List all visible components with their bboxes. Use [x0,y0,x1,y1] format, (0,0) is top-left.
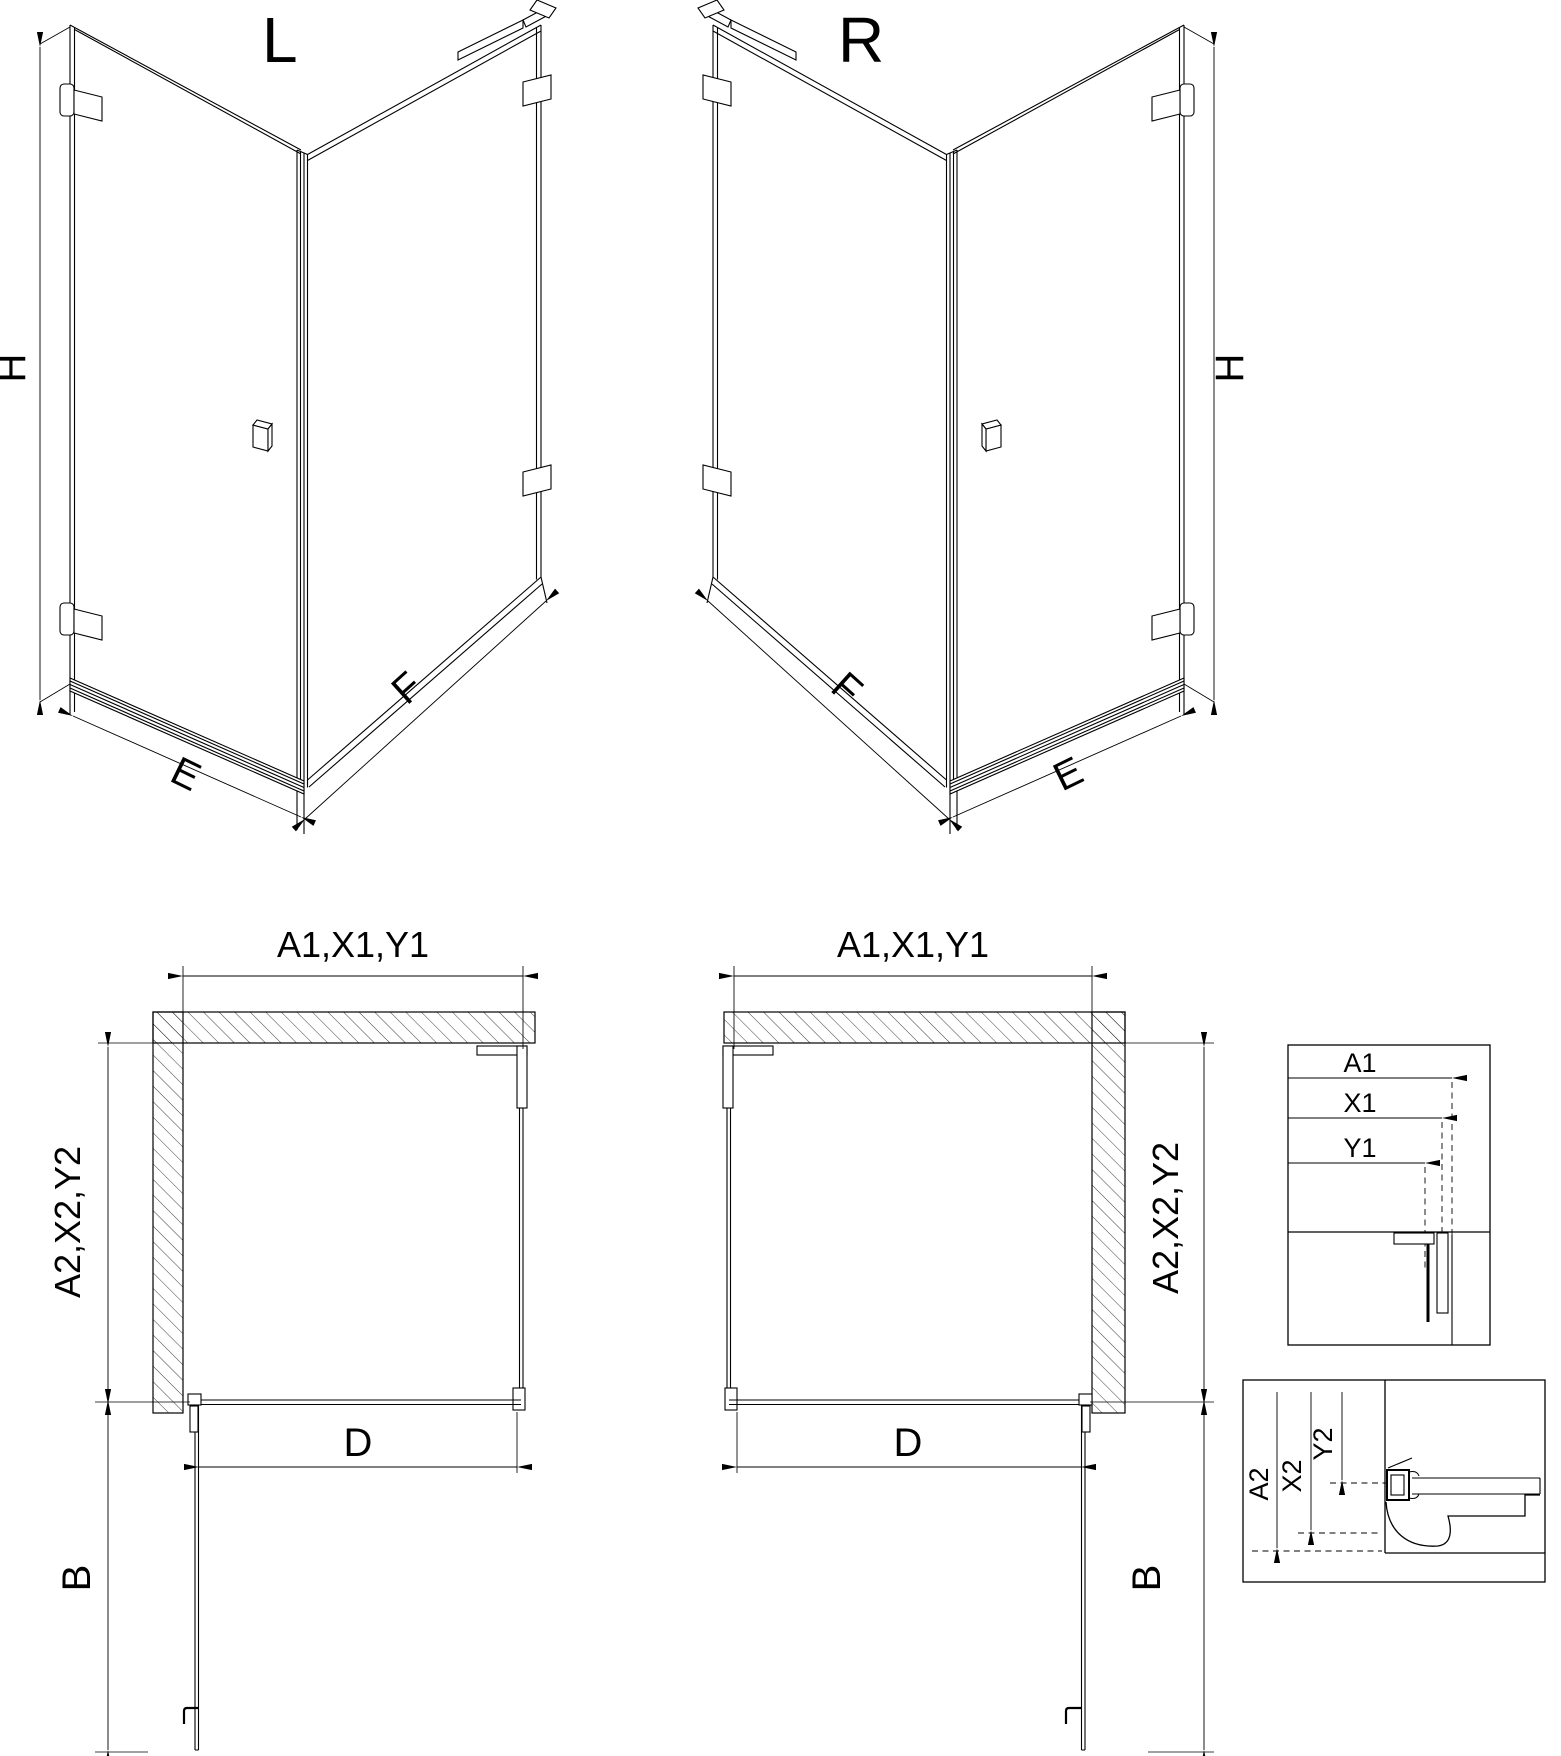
side-panel-glass [707,25,947,787]
dim-b-label: B [1125,1565,1169,1592]
dim-a1x1y1-label: A1,X1,Y1 [277,924,429,965]
iso-view-right-variant: R [698,0,1252,834]
detail-y2-label: Y2 [1308,1427,1338,1460]
dim-a2x2y2-label: A2,X2,Y2 [1145,1142,1186,1294]
corner-post-profile [297,150,308,834]
wall-clip-top [703,75,731,106]
dim-d-label: D [344,1421,373,1465]
open-door-plan [1066,1394,1092,1750]
dimension-b: B [55,1404,148,1752]
wall-clip-bottom [523,465,551,496]
drawing-canvas: L [0,0,1561,1756]
dim-e-label: E [1047,749,1090,800]
dimension-d: D [199,1412,517,1473]
dimension-height-h: H [0,27,70,702]
wall-right [1092,1012,1125,1413]
door-hinge-bottom [1152,603,1194,640]
dim-b-label: B [55,1565,99,1592]
dim-h-label: H [0,354,34,383]
wall-top [153,1012,535,1043]
dim-a1x1y1-label: A1,X1,Y1 [837,924,989,965]
door-handle-plan [184,1708,199,1724]
dimension-d: D [737,1412,1081,1473]
door-hinge-bottom [60,603,102,640]
detail-box-width-offsets: A1 X1 Y1 [1288,1045,1490,1345]
side-panel-glass [308,25,548,787]
side-panel-plan [477,1046,527,1410]
wall-left [153,1012,183,1413]
door-panel-glass [953,25,1184,714]
detail-y1-label: Y1 [1343,1133,1376,1163]
detail-x2-label: X2 [1277,1459,1307,1492]
corner-post-profile [947,150,958,834]
wall-clip-bottom [703,465,731,496]
dim-e-label: E [164,749,207,800]
wall-profile-section [1394,1233,1452,1345]
wall-clip-top [523,75,551,106]
iso-view-left-variant: L [0,0,556,834]
view-r-title: R [838,4,884,76]
wall-top [724,1012,1125,1043]
detail-a2-label: A2 [1244,1467,1274,1500]
dimension-height-h: H [1184,27,1252,702]
door-handle-plan [1066,1708,1081,1724]
detail-box-depth-offsets: A2 X2 Y2 [1243,1380,1545,1582]
tray-front-edge [729,1400,1085,1405]
door-hinge-top [60,84,102,121]
plan-view-right-variant: A1,X1,Y1 A2,X2,Y2 D B [723,924,1214,1752]
dimension-b: B [1125,1404,1214,1752]
door-handle-knob [982,420,1001,451]
plan-view-left-variant: A1,X1,Y1 A2,X2,Y2 D B [47,924,535,1752]
open-door-plan [184,1394,201,1750]
dim-h-label: H [1208,354,1252,383]
detail-a1-label: A1 [1343,1048,1376,1078]
door-handle-knob [253,420,272,451]
dimension-side-f: F [305,601,546,819]
view-l-title: L [262,4,298,76]
dim-d-label: D [894,1421,923,1465]
detail-x1-label: X1 [1343,1088,1376,1118]
dim-f-label: F [384,664,432,713]
door-hinge-top [1152,84,1194,121]
dim-a2x2y2-label: A2,X2,Y2 [47,1146,88,1298]
tray-front-edge [193,1400,521,1405]
side-panel-plan [723,1046,773,1410]
shower-enclosure-technical-drawing: L [0,0,1561,1756]
dimension-side-f: F [708,601,949,819]
dim-f-label: F [823,664,871,713]
door-panel-glass [70,25,301,714]
tray-seal-section [1386,1458,1540,1546]
